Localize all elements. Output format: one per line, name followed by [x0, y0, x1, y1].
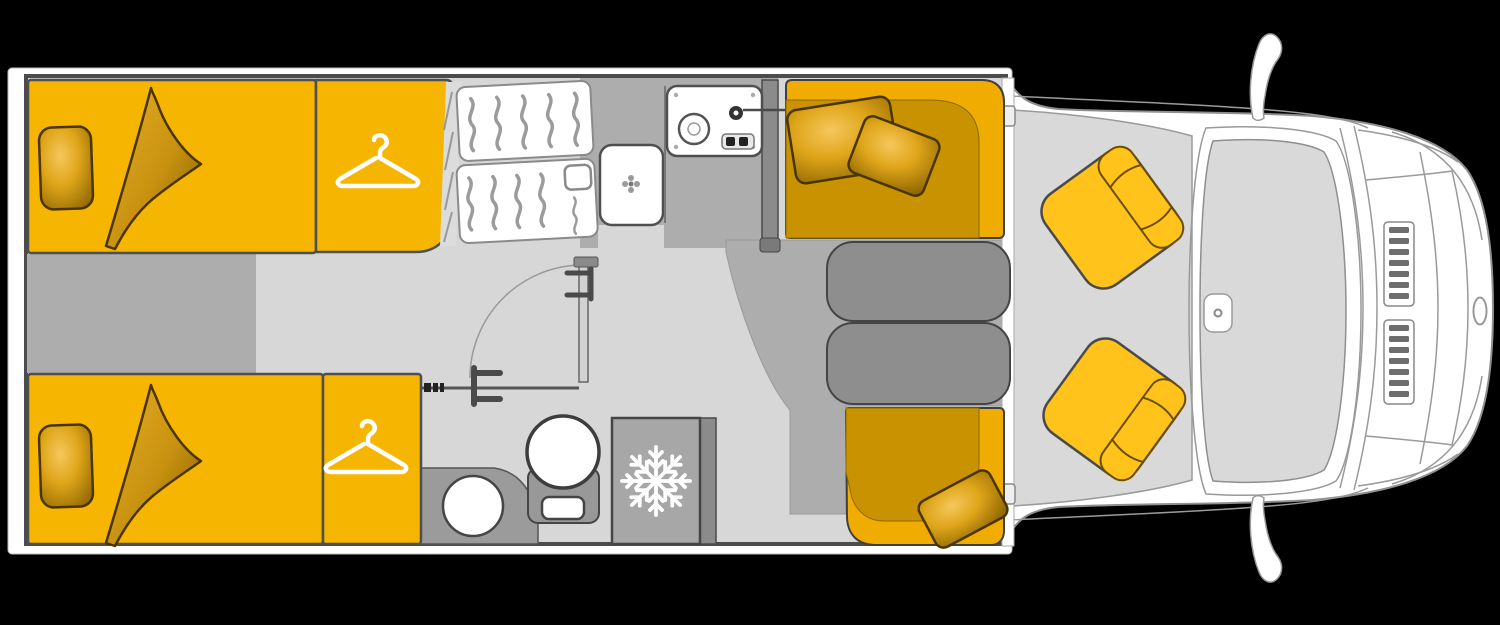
partition-end-cap [760, 238, 780, 252]
pillow-bottom-bed [39, 424, 94, 508]
stove-burners [722, 134, 754, 149]
vanity-basin [443, 476, 503, 536]
dashboard-vent-top [1384, 222, 1414, 306]
dashboard-vent-bottom [1384, 320, 1414, 404]
wardrobe-top [316, 80, 452, 252]
refrigerator [612, 418, 700, 544]
pillow-top-bed [39, 126, 94, 210]
bathroom-door [579, 264, 588, 382]
front-emblem [1474, 298, 1487, 325]
kitchen-partition-wall [762, 80, 778, 250]
rearview-mirror [1204, 294, 1232, 332]
dinette-table-top-half [827, 242, 1010, 321]
motorhome-floorplan [0, 0, 1500, 625]
fridge-side-wall [700, 418, 716, 544]
door-catch [424, 383, 444, 392]
habitation-section [8, 68, 1015, 554]
dinette-table-bottom-half [827, 323, 1010, 404]
door-hinge [574, 257, 598, 267]
toilet [527, 416, 599, 523]
sink-bowl [679, 114, 709, 144]
snowflake-icon [622, 447, 690, 515]
floor-inset-between-beds [27, 254, 256, 373]
floorplan-canvas [0, 0, 1500, 625]
boiler-knob [564, 165, 591, 190]
